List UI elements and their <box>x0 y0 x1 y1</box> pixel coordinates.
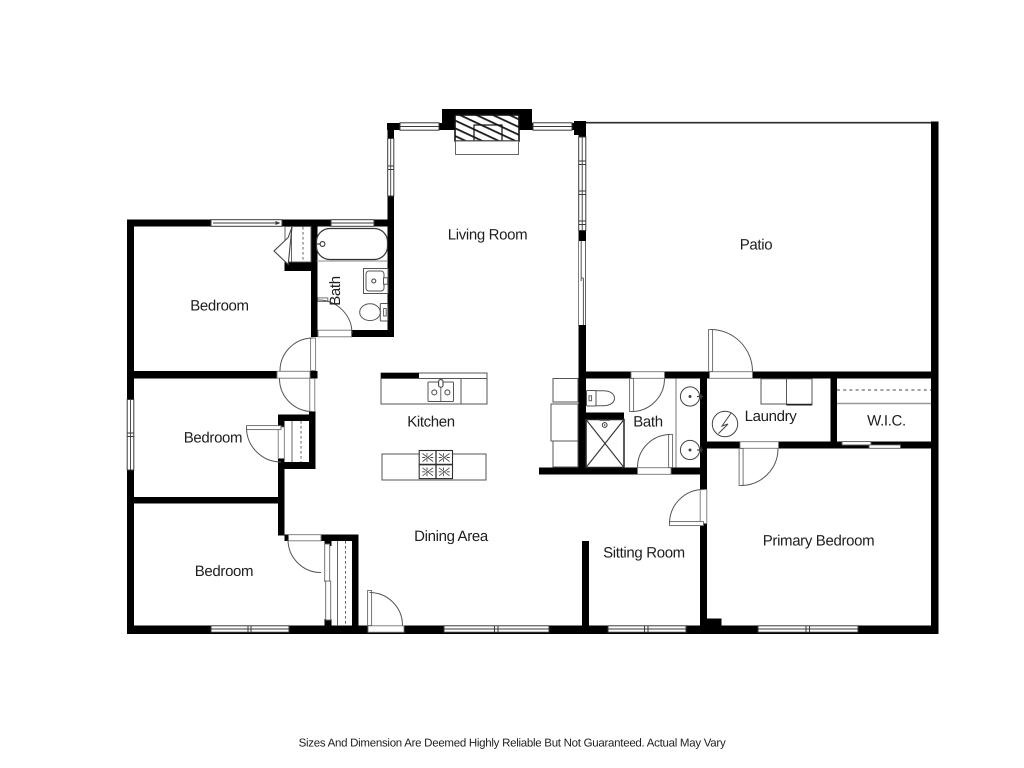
svg-text:Kitchen: Kitchen <box>407 414 455 431</box>
svg-text:Bedroom: Bedroom <box>190 298 248 315</box>
svg-text:W.I.C.: W.I.C. <box>867 413 906 430</box>
svg-text:Bath: Bath <box>633 414 662 431</box>
svg-text:Living Room: Living Room <box>448 227 528 244</box>
svg-text:Bedroom: Bedroom <box>184 430 242 447</box>
svg-text:Laundry: Laundry <box>745 408 798 425</box>
svg-text:Primary Bedroom: Primary Bedroom <box>763 533 874 550</box>
svg-text:Bath: Bath <box>327 276 344 305</box>
svg-text:Dining Area: Dining Area <box>414 528 489 545</box>
svg-text:Sitting Room: Sitting Room <box>603 545 685 562</box>
svg-text:Sizes And Dimension Are Deemed: Sizes And Dimension Are Deemed Highly Re… <box>299 738 726 750</box>
svg-text:Bedroom: Bedroom <box>195 563 253 580</box>
svg-text:Patio: Patio <box>740 237 772 254</box>
